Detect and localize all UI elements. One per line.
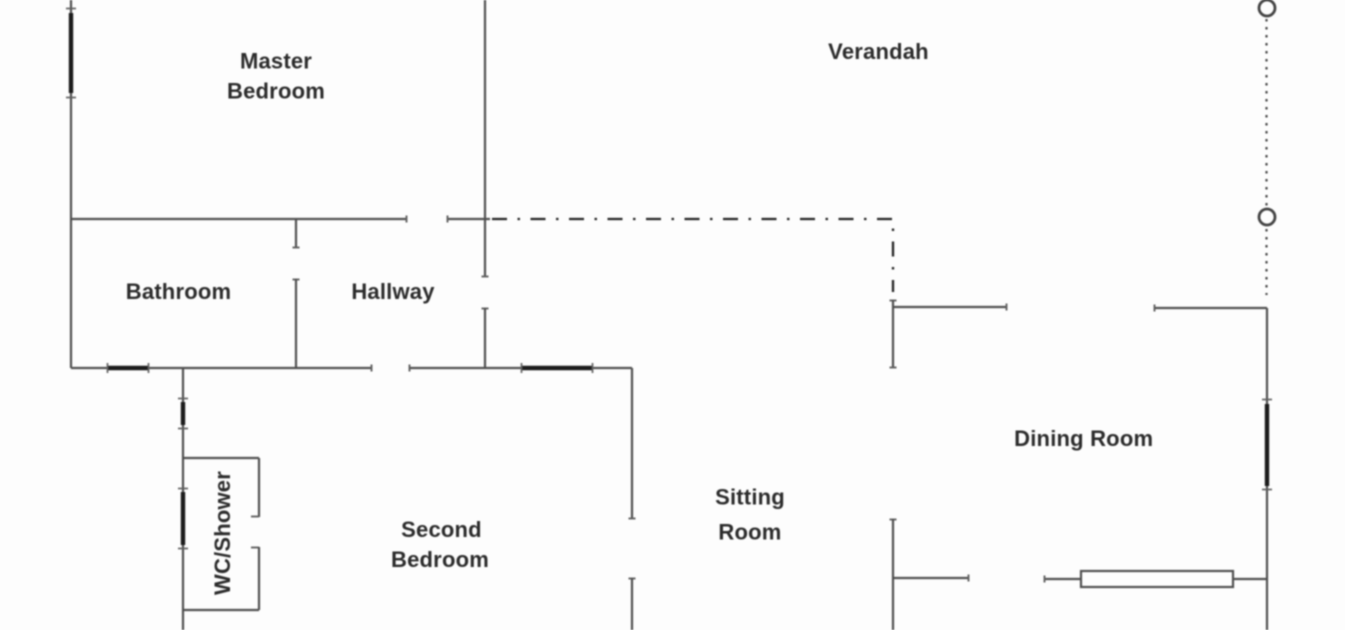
svg-text:Master: Master (240, 48, 312, 73)
svg-text:Verandah: Verandah (828, 39, 929, 64)
svg-text:Bedroom: Bedroom (391, 547, 489, 572)
svg-text:Sitting: Sitting (715, 485, 785, 510)
svg-text:Dining Room: Dining Room (1014, 426, 1153, 451)
svg-text:Hallway: Hallway (351, 279, 435, 304)
svg-text:WC/Shower: WC/Shower (210, 471, 235, 595)
svg-text:Second: Second (401, 517, 482, 542)
svg-text:Bathroom: Bathroom (126, 279, 232, 304)
svg-text:Bedroom: Bedroom (227, 79, 325, 104)
svg-text:Room: Room (718, 520, 781, 545)
